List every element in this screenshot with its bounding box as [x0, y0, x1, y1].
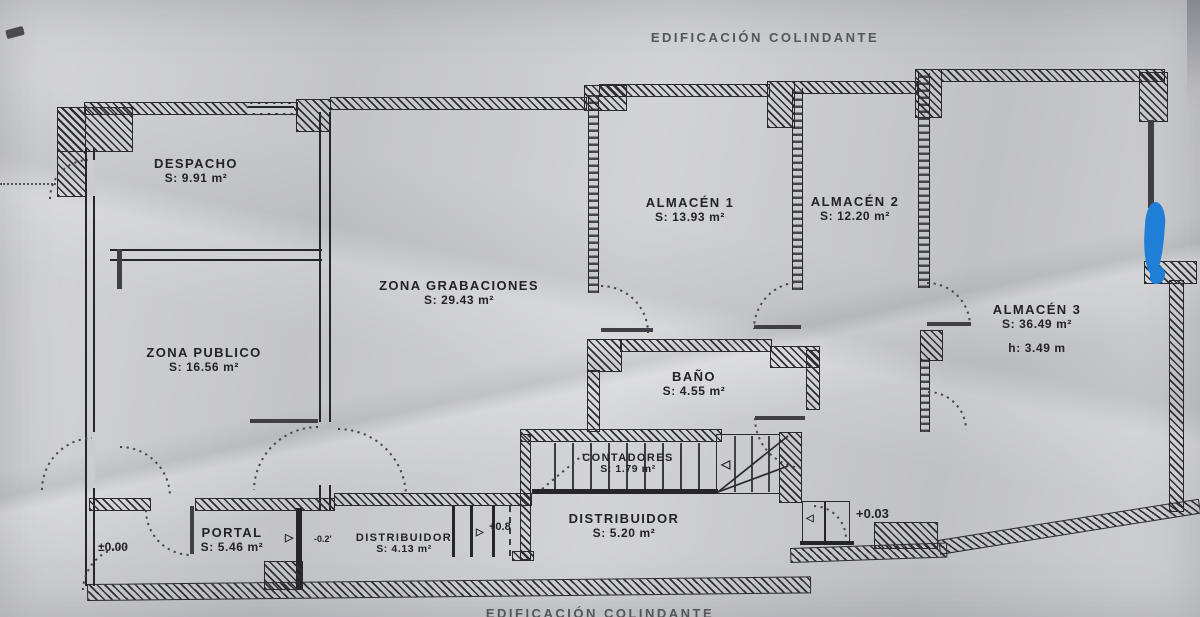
wall-portal-top [195, 498, 335, 511]
room-label-distribuidor-small: DISTRIBUIDOR S: 4.13 m² [314, 532, 494, 556]
room-label-almacen-2: ALMACÉN 2 S: 12.20 m² [765, 195, 945, 223]
room-label-bano: BAÑO S: 4.55 m² [604, 370, 784, 398]
door-swing-arc [120, 447, 170, 497]
room-label-distribuidor-main: DISTRIBUIDOR S: 5.20 m² [534, 512, 714, 540]
door-leaf [754, 325, 801, 329]
room-area: S: 13.93 m² [600, 211, 780, 224]
wall-bano-right [806, 350, 820, 410]
room-label-almacen-1: ALMACÉN 1 S: 13.93 m² [600, 196, 780, 224]
door-leaf [755, 416, 805, 420]
room-area: S: 4.55 m² [604, 385, 784, 398]
wall-distribuidor-top [334, 493, 532, 506]
threshold-arrow-icon: ◁ [806, 513, 814, 524]
threshold-arrow-icon: ◁ [721, 457, 730, 471]
window-line [248, 106, 294, 108]
level-marker-portal-step: -0.2' [314, 534, 332, 544]
wall-corner-top-left [57, 107, 86, 197]
door-unit-base [800, 541, 854, 545]
door-leaf [601, 328, 653, 332]
wall-block [512, 551, 534, 561]
wall-bano-left [587, 370, 600, 432]
door-leaf [1148, 120, 1154, 208]
door-line [85, 432, 87, 488]
room-area: S: 5.20 m² [534, 527, 714, 540]
door-unit-divider [824, 501, 826, 543]
wall-partition [792, 88, 803, 290]
room-area: S: 9.91 m² [116, 172, 276, 185]
wall-block [264, 561, 303, 590]
wall-block [920, 330, 943, 361]
room-name: DISTRIBUIDOR [534, 512, 714, 527]
wall-bottom-block [874, 522, 938, 549]
wall-top [330, 97, 587, 110]
room-label-contadores: CONTADORES S: 1.79 m² [538, 452, 718, 476]
room-name: BAÑO [604, 370, 784, 385]
room-name: ALMACÉN 1 [600, 196, 780, 211]
threshold-arrow-icon: ▷ [476, 527, 484, 538]
wall-corner-top-right [1139, 72, 1168, 122]
wall-partition [319, 112, 331, 422]
wall-top [794, 81, 918, 94]
wall-left-facade [85, 148, 95, 586]
wall-bottom-slanted [938, 499, 1200, 555]
wall-partition [920, 358, 930, 432]
level-marker-almacen-step: +0.03 [856, 506, 889, 521]
wall-bano-top [620, 339, 772, 352]
room-height: h: 3.49 m [947, 342, 1127, 355]
door-leaf [117, 249, 122, 289]
floor-plan: EDIFICACIÓN COLINDANTE EDIFICACIÓN COLIN… [0, 0, 1200, 617]
door-swing-arc [254, 427, 318, 490]
door-swing-arc [338, 429, 406, 496]
room-area: S: 4.13 m² [314, 544, 494, 556]
level-marker-portal-entry: ±0.00 [98, 540, 128, 554]
wall-contadores-top [520, 429, 722, 442]
wall-bano-corner [587, 339, 622, 372]
room-label-zona-grabaciones: ZONA GRABACIONES S: 29.43 m² [359, 279, 559, 307]
door-line [85, 160, 87, 196]
contadores-base-line [532, 489, 718, 494]
wall-partition [918, 73, 930, 288]
room-name: ALMACÉN 2 [765, 195, 945, 210]
room-label-almacen-3: ALMACÉN 3 S: 36.49 m² [947, 303, 1127, 331]
room-area: S: 12.20 m² [765, 210, 945, 223]
door-swing-arc [928, 392, 966, 430]
wall-top [599, 84, 770, 97]
room-area: S: 5.46 m² [142, 541, 322, 554]
room-name: PORTAL [142, 526, 322, 541]
level-marker-distribuidor-step: +0.8 [489, 521, 511, 533]
bottom-boundary-label: EDIFICACIÓN COLINDANTE [430, 606, 770, 617]
wall-top [941, 69, 1165, 82]
room-name: ALMACÉN 3 [947, 303, 1127, 318]
room-area: S: 1.79 m² [538, 464, 718, 476]
top-boundary-label: EDIFICACIÓN COLINDANTE [565, 30, 965, 45]
room-name: ZONA PUBLICO [124, 346, 284, 361]
stair-wall-block [779, 432, 802, 503]
wall-zona-publico-top [110, 249, 322, 261]
wall-partition [588, 95, 599, 293]
room-area: S: 29.43 m² [359, 294, 559, 307]
paper-edge-shadow [1187, 0, 1200, 110]
room-name: ZONA GRABACIONES [359, 279, 559, 294]
wall-bottom [87, 576, 811, 601]
door-swing-arc [601, 286, 648, 333]
wall-portal-top [89, 498, 151, 511]
room-label-despacho: DESPACHO S: 9.91 m² [116, 157, 276, 185]
property-dash-line [0, 183, 56, 185]
wall-pillar [767, 81, 795, 128]
room-label-portal: PORTAL S: 5.46 m² [142, 526, 322, 554]
room-label-zona-publico: ZONA PUBLICO S: 16.56 m² [124, 346, 284, 374]
room-area: S: 36.49 m² [947, 318, 1127, 331]
door-leaf [250, 419, 318, 423]
room-name: DESPACHO [116, 157, 276, 172]
pen-scribble [5, 26, 25, 39]
wall-right [1169, 280, 1184, 512]
threshold-arrow-icon: ▷ [285, 531, 293, 544]
room-height-almacen-3: h: 3.49 m [947, 342, 1127, 355]
room-area: S: 16.56 m² [124, 361, 284, 374]
